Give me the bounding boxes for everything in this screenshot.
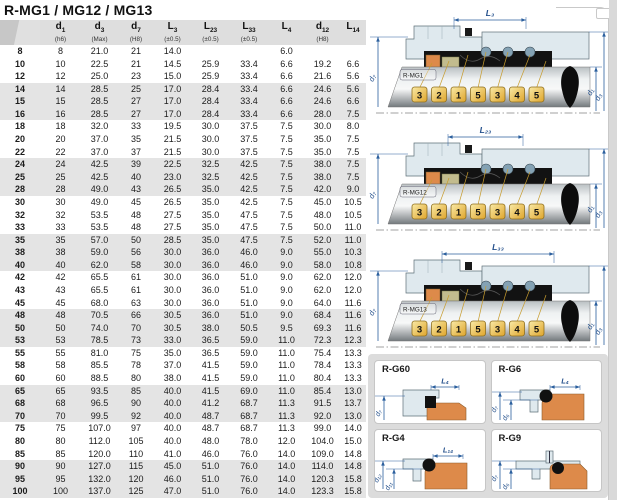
dimension-cell: 64.0 bbox=[305, 297, 340, 310]
dimension-cell: 81.0 bbox=[81, 347, 118, 360]
dimension-cell: 123.3 bbox=[305, 485, 340, 498]
dimension-cell: 28.4 bbox=[191, 95, 230, 108]
balloon-number: 5 bbox=[475, 91, 481, 102]
dimension-cell: 22.5 bbox=[154, 158, 191, 171]
dimension-cell: 36.5 bbox=[191, 347, 230, 360]
dimension-cell: 70 bbox=[40, 410, 81, 423]
table-row: 434365.56130.036.051.09.062.012.0 bbox=[0, 284, 366, 297]
dimension-cell: 33.4 bbox=[230, 83, 268, 96]
dimension-cell: 120.3 bbox=[305, 473, 340, 486]
dimension-cell: 90 bbox=[118, 397, 154, 410]
column-header-tolerance: (±0.5) bbox=[191, 36, 230, 43]
dimension-cell: 38.0 bbox=[191, 322, 230, 335]
dimension-cell: 35.0 bbox=[191, 183, 230, 196]
column-header: L3(±0.5) bbox=[154, 20, 191, 45]
size-label-cell: 80 bbox=[0, 435, 40, 448]
dimension-cell: 41.5 bbox=[191, 372, 230, 385]
dimension-cell: 7.5 bbox=[340, 133, 366, 146]
dimension-cell: 40.0 bbox=[154, 422, 191, 435]
dimension-cell: 33.4 bbox=[230, 108, 268, 121]
table-row: 9090127.011545.051.076.014.0114.014.8 bbox=[0, 460, 366, 473]
dimension-cell: 59.0 bbox=[230, 372, 268, 385]
dimension-cell: 35.0 bbox=[305, 133, 340, 146]
table-row: 606088.58038.041.559.011.080.413.3 bbox=[0, 372, 366, 385]
dimension-cell: 14.0 bbox=[154, 45, 191, 58]
table-row: 303049.04526.535.042.57.545.010.5 bbox=[0, 196, 366, 209]
dimension-cell: 110 bbox=[118, 448, 154, 461]
dimension-cell: 6.6 bbox=[268, 108, 305, 121]
dimension-cell: 35.0 bbox=[191, 196, 230, 209]
dimension-cell: 17.0 bbox=[154, 108, 191, 121]
dimension-cell bbox=[230, 45, 268, 58]
dimension-cell: 14.8 bbox=[340, 460, 366, 473]
table-row: 333353.54827.535.047.57.550.011.0 bbox=[0, 221, 366, 234]
dimension-cell: 51.0 bbox=[230, 309, 268, 322]
balloon-number: 2 bbox=[436, 91, 441, 102]
column-header-label: L4 bbox=[268, 21, 305, 36]
dimension-cell: 80 bbox=[40, 435, 81, 448]
table-row: 252542.54023.032.542.57.538.07.5 bbox=[0, 171, 366, 184]
dimension-cell: 9.0 bbox=[268, 284, 305, 297]
table-row: 555581.07535.036.559.011.075.413.3 bbox=[0, 347, 366, 360]
balloon-number: 1 bbox=[456, 91, 462, 102]
set-screw bbox=[465, 262, 472, 270]
seal-diagram-mg13: R-MG13 3 2 1 5 3 4 5 L₃₃ d₇ d₁ d₃ bbox=[368, 237, 608, 354]
dimension-cell: 53 bbox=[40, 334, 81, 347]
dimension-cell: 24.6 bbox=[305, 95, 340, 108]
dimension-cell: 27 bbox=[118, 108, 154, 121]
dimension-cell: 11.3 bbox=[268, 410, 305, 423]
dimension-cell: 20 bbox=[40, 133, 81, 146]
dimension-cell: 78.5 bbox=[81, 334, 118, 347]
dimension-cell: 45.0 bbox=[154, 460, 191, 473]
table-row: 535378.57333.036.559.011.072.312.3 bbox=[0, 334, 366, 347]
dimension-cell: 68.7 bbox=[230, 410, 268, 423]
dimension-cell: 11.3 bbox=[268, 397, 305, 410]
dimension-cell: 105 bbox=[118, 435, 154, 448]
dimension-cell: 7.5 bbox=[268, 196, 305, 209]
dimension-cell: 41.2 bbox=[191, 397, 230, 410]
dim-label-length: L₂₃ bbox=[480, 125, 492, 135]
size-label-cell: 58 bbox=[0, 359, 40, 372]
column-header: d1(h6) bbox=[40, 20, 81, 45]
dimension-cell: 28.5 bbox=[81, 83, 118, 96]
dimension-cell: 33 bbox=[118, 120, 154, 133]
dimension-cell: 58 bbox=[40, 359, 81, 372]
table-header: d1(h6)d3(Max)d7(H8)L3(±0.5)L23(±0.5)L33(… bbox=[0, 20, 366, 45]
dimension-cell bbox=[340, 45, 366, 58]
table-row: 282849.04326.535.042.57.542.09.0 bbox=[0, 183, 366, 196]
dimension-cell: 9.0 bbox=[340, 183, 366, 196]
column-header-label: d3 bbox=[81, 21, 118, 36]
table-row: 656593.58540.041.569.011.085.413.0 bbox=[0, 385, 366, 398]
dimension-cell: 35.0 bbox=[154, 347, 191, 360]
dimension-cell: 27.5 bbox=[154, 209, 191, 222]
dimension-cell: 33.4 bbox=[230, 95, 268, 108]
dimension-cell: 42.5 bbox=[230, 183, 268, 196]
dimension-cell: 46.0 bbox=[191, 448, 230, 461]
dimension-cell: 96.5 bbox=[81, 397, 118, 410]
size-label-cell: 28 bbox=[0, 183, 40, 196]
dim-label-length: L₃ bbox=[486, 8, 495, 18]
dimension-cell: 14.5 bbox=[154, 58, 191, 71]
dim-label-d7: d₇ bbox=[368, 307, 378, 317]
column-header-tolerance: (h6) bbox=[40, 36, 81, 43]
dimension-cell: 23.0 bbox=[154, 171, 191, 184]
dimension-cell: 37.5 bbox=[230, 146, 268, 159]
column-header: L33(±0.5) bbox=[230, 20, 268, 45]
dimension-cell: 17.0 bbox=[154, 95, 191, 108]
dimension-cell: 38 bbox=[40, 246, 81, 259]
seat-ring bbox=[426, 172, 440, 184]
dimension-cell: 45 bbox=[40, 297, 81, 310]
dimension-cell: 61 bbox=[118, 271, 154, 284]
column-header: L23(±0.5) bbox=[191, 20, 230, 45]
dim-label-length: L₃₃ bbox=[492, 242, 504, 252]
dimension-cell: 11.0 bbox=[268, 372, 305, 385]
seat-panel-g6: R-G6 L₄ d₇ d₆ bbox=[491, 360, 603, 424]
column-header: L14 bbox=[340, 20, 366, 45]
dim-label-d3: d₃ bbox=[593, 209, 604, 219]
dimension-cell: 7.5 bbox=[268, 221, 305, 234]
table-row: 323253.54827.535.047.57.548.010.5 bbox=[0, 209, 366, 222]
dimension-cell: 52.0 bbox=[305, 234, 340, 247]
dimension-cell: 8 bbox=[40, 45, 81, 58]
dimension-cell: 11.0 bbox=[268, 347, 305, 360]
dimension-cell: 78 bbox=[118, 359, 154, 372]
dimension-cell: 75.4 bbox=[305, 347, 340, 360]
dimension-cell: 37.5 bbox=[230, 133, 268, 146]
dimension-cell: 68.4 bbox=[305, 309, 340, 322]
dimension-cell: 10.5 bbox=[340, 196, 366, 209]
dim-label-d7: d₇ bbox=[368, 73, 378, 83]
dimension-cell: 37.0 bbox=[81, 146, 118, 159]
dimension-cell: 33.0 bbox=[154, 334, 191, 347]
dimension-cell: 30 bbox=[40, 196, 81, 209]
dimension-cell: 42.0 bbox=[305, 183, 340, 196]
dimension-cell: 24.6 bbox=[305, 83, 340, 96]
column-header-label: L33 bbox=[230, 21, 268, 36]
dimension-cell: 15.8 bbox=[340, 485, 366, 498]
table-row: 707099.59240.048.768.711.392.013.0 bbox=[0, 410, 366, 423]
dimension-cell: 13.3 bbox=[340, 359, 366, 372]
dimension-cell: 36.0 bbox=[191, 259, 230, 272]
table-row: 686896.59040.041.268.711.391.513.7 bbox=[0, 397, 366, 410]
size-label-cell: 100 bbox=[0, 485, 40, 498]
dimension-cell: 11.6 bbox=[340, 309, 366, 322]
dimension-cell: 21 bbox=[118, 45, 154, 58]
dimension-cell: 21.0 bbox=[81, 45, 118, 58]
dimension-cell: 49.0 bbox=[81, 196, 118, 209]
dimension-cell: 63 bbox=[118, 297, 154, 310]
dimension-cell: 80 bbox=[118, 372, 154, 385]
balloon-number: 3 bbox=[417, 91, 422, 102]
dimension-cell: 78.0 bbox=[230, 435, 268, 448]
dimension-cell: 30.0 bbox=[191, 133, 230, 146]
dimension-cell bbox=[191, 45, 230, 58]
seal-face bbox=[442, 57, 459, 67]
dimension-cell: 90 bbox=[40, 460, 81, 473]
dimension-cell: 42.5 bbox=[230, 171, 268, 184]
size-label-cell: 42 bbox=[0, 271, 40, 284]
dimension-cell: 6.6 bbox=[340, 95, 366, 108]
dim-label-d3: d₃ bbox=[593, 326, 604, 336]
dimension-cell: 9.0 bbox=[268, 259, 305, 272]
column-header-tolerance: (H8) bbox=[305, 36, 340, 43]
dimension-cell: 6.6 bbox=[268, 83, 305, 96]
dimension-cell: 11.0 bbox=[340, 221, 366, 234]
dimension-cell: 11.3 bbox=[268, 422, 305, 435]
dimension-cell: 38.0 bbox=[305, 171, 340, 184]
dimension-cell: 48 bbox=[40, 309, 81, 322]
dimension-cell: 50.0 bbox=[305, 221, 340, 234]
dimension-cell: 37.0 bbox=[154, 359, 191, 372]
balloon-number: 5 bbox=[534, 325, 540, 336]
dimension-cell: 68.0 bbox=[81, 297, 118, 310]
dimension-cell: 14.0 bbox=[268, 460, 305, 473]
seat-panel-g4: R-G4 L₁₄ d₁₂ d₁₁ bbox=[374, 429, 486, 493]
dimension-cell: 97 bbox=[118, 422, 154, 435]
dimension-cell: 8.0 bbox=[340, 120, 366, 133]
dimension-cell: 51.0 bbox=[191, 473, 230, 486]
dimension-cell: 30.5 bbox=[154, 309, 191, 322]
dimension-cell: 22.5 bbox=[81, 58, 118, 71]
dimension-cell: 88.5 bbox=[81, 372, 118, 385]
dimension-cell: 13.3 bbox=[340, 372, 366, 385]
set-screw bbox=[465, 28, 472, 36]
dimension-cell: 76.0 bbox=[230, 485, 268, 498]
size-label-cell: 38 bbox=[0, 246, 40, 259]
dimension-cell: 76.0 bbox=[230, 448, 268, 461]
size-label-cell: 8 bbox=[0, 45, 40, 58]
column-header-tolerance bbox=[340, 36, 366, 43]
table-row: 353557.05028.535.047.57.552.011.0 bbox=[0, 234, 366, 247]
dimension-cell: 57.0 bbox=[81, 234, 118, 247]
balloon-number: 2 bbox=[436, 208, 441, 219]
balloon-number: 4 bbox=[514, 208, 520, 219]
dimension-cell: 15.0 bbox=[154, 70, 191, 83]
size-label-cell: 15 bbox=[0, 95, 40, 108]
dimension-cell: 115 bbox=[118, 460, 154, 473]
dimension-cell: 40.0 bbox=[154, 385, 191, 398]
dimension-table: d1(h6)d3(Max)d7(H8)L3(±0.5)L23(±0.5)L33(… bbox=[0, 20, 366, 498]
dimension-cell: 45 bbox=[118, 196, 154, 209]
dimension-cell: 12.3 bbox=[340, 334, 366, 347]
dimension-cell: 14.0 bbox=[268, 485, 305, 498]
dimension-cell: 125 bbox=[118, 485, 154, 498]
dimension-cell: 26.5 bbox=[154, 196, 191, 209]
size-label-cell: 33 bbox=[0, 221, 40, 234]
size-label-cell: 14 bbox=[0, 83, 40, 96]
table-row: 8080112.010540.048.078.012.0104.015.0 bbox=[0, 435, 366, 448]
dimension-cell: 14.8 bbox=[340, 448, 366, 461]
dimension-cell: 35.0 bbox=[191, 209, 230, 222]
column-header-tolerance: (H8) bbox=[118, 36, 154, 43]
dimension-cell: 120 bbox=[118, 473, 154, 486]
table-row: 585885.57837.041.559.011.078.413.3 bbox=[0, 359, 366, 372]
table-row: 101022.52114.525.933.46.619.26.6 bbox=[0, 58, 366, 71]
dimension-cell: 28.5 bbox=[81, 108, 118, 121]
dimension-cell: 39 bbox=[118, 158, 154, 171]
dimension-cell: 51.0 bbox=[230, 284, 268, 297]
dimension-cell: 137.0 bbox=[81, 485, 118, 498]
dimension-cell: 47.5 bbox=[230, 209, 268, 222]
dim-label: d₆ bbox=[501, 413, 510, 422]
dimension-cell: 132.0 bbox=[81, 473, 118, 486]
dimension-cell: 85 bbox=[118, 385, 154, 398]
dimension-cell: 10.8 bbox=[340, 259, 366, 272]
column-header-label: d12 bbox=[305, 21, 340, 36]
dimension-cell: 92.0 bbox=[305, 410, 340, 423]
dimension-cell: 25.0 bbox=[81, 70, 118, 83]
dimension-cell: 36.0 bbox=[191, 246, 230, 259]
dimension-cell: 45.0 bbox=[305, 196, 340, 209]
dimension-cell: 40.0 bbox=[154, 435, 191, 448]
dimension-cell: 56 bbox=[118, 246, 154, 259]
dimension-cell: 46.0 bbox=[154, 473, 191, 486]
dimension-cell: 30.0 bbox=[305, 120, 340, 133]
balloon-number: 4 bbox=[514, 325, 520, 336]
dimension-cell: 91.5 bbox=[305, 397, 340, 410]
size-label-cell: 50 bbox=[0, 322, 40, 335]
dimension-cell: 58 bbox=[118, 259, 154, 272]
dimension-cell: 25.9 bbox=[191, 58, 230, 71]
dimension-cell: 25 bbox=[118, 83, 154, 96]
dimension-cell: 53.5 bbox=[81, 209, 118, 222]
dimension-cell: 11.0 bbox=[268, 359, 305, 372]
size-label-cell: 16 bbox=[0, 108, 40, 121]
dimension-cell: 48.0 bbox=[191, 435, 230, 448]
dimension-cell: 59.0 bbox=[230, 334, 268, 347]
dimension-cell: 30.5 bbox=[154, 322, 191, 335]
dimension-cell: 70.5 bbox=[81, 309, 118, 322]
dimension-cell: 58.0 bbox=[305, 259, 340, 272]
dimension-cell: 62.0 bbox=[305, 284, 340, 297]
column-header-tolerance: (±0.5) bbox=[230, 36, 268, 43]
dimension-cell: 30.0 bbox=[154, 259, 191, 272]
seat-drawing-g4: L₁₄ d₁₂ d₁₁ bbox=[375, 443, 486, 493]
dimension-cell: 21.5 bbox=[154, 133, 191, 146]
dimension-cell: 51.0 bbox=[230, 297, 268, 310]
dimension-cell: 5.6 bbox=[340, 70, 366, 83]
table-row: 141428.52517.028.433.46.624.65.6 bbox=[0, 83, 366, 96]
dimension-cell: 51.0 bbox=[191, 485, 230, 498]
dimension-cell: 36.5 bbox=[191, 334, 230, 347]
dimension-cell: 38.0 bbox=[305, 158, 340, 171]
balloon-number: 3 bbox=[495, 91, 500, 102]
column-header-tolerance: (±0.5) bbox=[154, 36, 191, 43]
dimension-cell: 14.0 bbox=[268, 473, 305, 486]
dim-label-length: L₄ bbox=[441, 377, 449, 386]
dimension-cell: 38.0 bbox=[154, 372, 191, 385]
dimension-cell: 53.5 bbox=[81, 221, 118, 234]
dimension-cell: 109.0 bbox=[305, 448, 340, 461]
dimension-cell: 68 bbox=[40, 397, 81, 410]
corner-header-cell bbox=[0, 20, 40, 45]
dimension-cell: 30.0 bbox=[191, 120, 230, 133]
dimension-cell: 9.0 bbox=[268, 297, 305, 310]
size-label-cell: 20 bbox=[0, 133, 40, 146]
seat-panel-g60: R-G60 L₄ d₇ bbox=[374, 360, 486, 424]
dimension-cell: 11.0 bbox=[340, 234, 366, 247]
size-label-cell: 45 bbox=[0, 297, 40, 310]
dim-label: d₇ bbox=[492, 405, 500, 414]
dimension-cell: 50 bbox=[118, 234, 154, 247]
shaft-label: R-MG13 bbox=[403, 307, 427, 314]
dimension-cell: 12.0 bbox=[268, 435, 305, 448]
dimension-cell: 42 bbox=[40, 271, 81, 284]
dimension-cell: 68.7 bbox=[230, 397, 268, 410]
balloon-number: 4 bbox=[514, 91, 520, 102]
dimension-cell: 11.0 bbox=[268, 385, 305, 398]
dimension-cell: 41.5 bbox=[191, 359, 230, 372]
o-ring bbox=[423, 458, 436, 471]
dimension-cell: 32.0 bbox=[81, 120, 118, 133]
size-label-cell: 35 bbox=[0, 234, 40, 247]
table-row: 181832.03319.530.037.57.530.08.0 bbox=[0, 120, 366, 133]
dimension-cell: 28.5 bbox=[154, 234, 191, 247]
page-edge bbox=[609, 0, 617, 500]
size-label-cell: 12 bbox=[0, 70, 40, 83]
dimension-cell: 27 bbox=[118, 95, 154, 108]
dimension-cell: 41.5 bbox=[191, 385, 230, 398]
table-row: 242442.53922.532.542.57.538.07.5 bbox=[0, 158, 366, 171]
dimension-cell: 65.5 bbox=[81, 284, 118, 297]
dimension-cell: 48.7 bbox=[191, 422, 230, 435]
dimension-cell: 100 bbox=[40, 485, 81, 498]
dimension-cell: 7.5 bbox=[268, 234, 305, 247]
dimension-cell: 28.4 bbox=[191, 108, 230, 121]
dimension-cell: 32.5 bbox=[191, 158, 230, 171]
seal-face bbox=[442, 291, 459, 301]
table-row: 8821.02114.06.0 bbox=[0, 45, 366, 58]
set-screw bbox=[465, 145, 472, 153]
o-ring bbox=[539, 390, 552, 403]
dimension-cell: 35.0 bbox=[305, 146, 340, 159]
dimension-cell: 14 bbox=[40, 83, 81, 96]
dimension-cell: 75 bbox=[40, 422, 81, 435]
dim-label: d₆ bbox=[501, 481, 510, 490]
o-ring bbox=[552, 462, 564, 474]
dimension-cell: 95 bbox=[40, 473, 81, 486]
dimension-cell: 35 bbox=[118, 133, 154, 146]
dimension-cell: 85 bbox=[40, 448, 81, 461]
dimension-cell: 74.0 bbox=[81, 322, 118, 335]
seat-panel-g9: R-G9 d₇ d₆ bbox=[491, 429, 603, 493]
dimension-cell: 41.0 bbox=[154, 448, 191, 461]
column-header: d12(H8) bbox=[305, 20, 340, 45]
size-label-cell: 68 bbox=[0, 397, 40, 410]
dimension-cell: 30.0 bbox=[191, 146, 230, 159]
dimension-cell: 10.3 bbox=[340, 246, 366, 259]
column-header-tolerance bbox=[268, 36, 305, 43]
column-header: d3(Max) bbox=[81, 20, 118, 45]
dimension-cell: 85.4 bbox=[305, 385, 340, 398]
dimension-cell: 28.4 bbox=[191, 83, 230, 96]
column-header-label: L23 bbox=[191, 21, 230, 36]
dimension-cell: 62.0 bbox=[305, 271, 340, 284]
table-row: 7575107.09740.048.768.711.399.014.0 bbox=[0, 422, 366, 435]
dimension-cell: 66 bbox=[118, 309, 154, 322]
dim-label-length: L₄ bbox=[561, 377, 569, 386]
dimension-cell: 15.8 bbox=[340, 473, 366, 486]
dimension-cell: 7.5 bbox=[268, 146, 305, 159]
dimension-cell: 7.5 bbox=[268, 158, 305, 171]
size-label-cell: 25 bbox=[0, 171, 40, 184]
dimension-cell: 7.5 bbox=[340, 108, 366, 121]
dimension-cell bbox=[305, 45, 340, 58]
dimension-cell: 107.0 bbox=[81, 422, 118, 435]
